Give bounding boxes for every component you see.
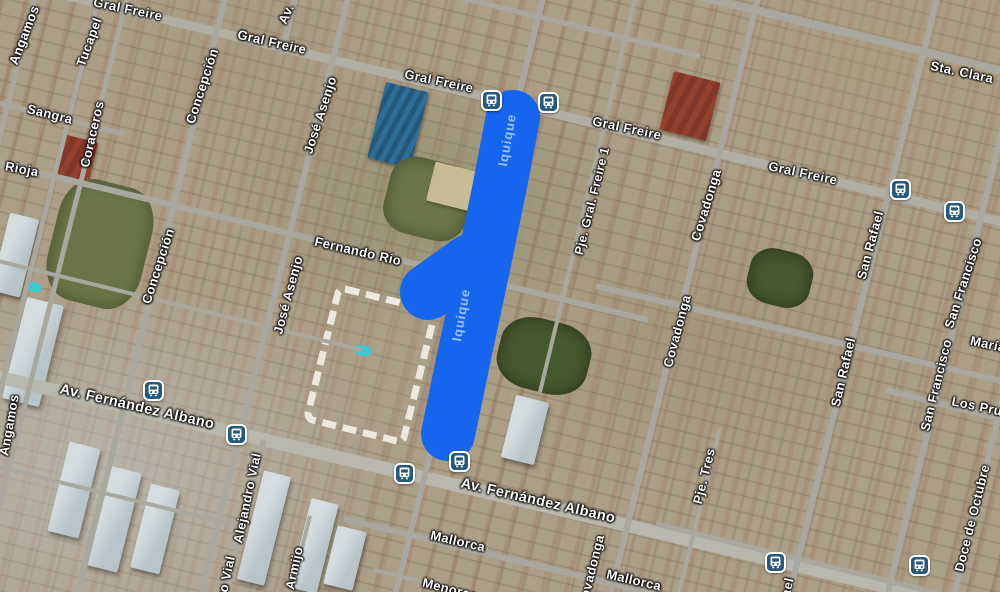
- transit-stop-icon[interactable]: [944, 201, 965, 222]
- bus-icon: [911, 557, 928, 574]
- bus-icon: [396, 465, 413, 482]
- bus-icon: [145, 382, 162, 399]
- bus-icon: [451, 453, 468, 470]
- bus-icon: [540, 94, 557, 111]
- transit-stops: [0, 0, 1000, 592]
- bus-icon: [228, 426, 245, 443]
- transit-stop-icon[interactable]: [538, 92, 559, 113]
- bus-icon: [767, 554, 784, 571]
- transit-stop-icon[interactable]: [226, 424, 247, 445]
- transit-stop-icon[interactable]: [890, 179, 911, 200]
- bus-icon: [483, 92, 500, 109]
- bus-icon: [892, 181, 909, 198]
- transit-stop-icon[interactable]: [449, 451, 470, 472]
- transit-stop-icon[interactable]: [765, 552, 786, 573]
- transit-stop-icon[interactable]: [394, 463, 415, 484]
- bus-icon: [946, 203, 963, 220]
- transit-stop-icon[interactable]: [909, 555, 930, 576]
- transit-stop-icon[interactable]: [481, 90, 502, 111]
- satellite-map[interactable]: Gral FreireGral FreireGral FreireGral Fr…: [0, 0, 1000, 592]
- transit-stop-icon[interactable]: [143, 380, 164, 401]
